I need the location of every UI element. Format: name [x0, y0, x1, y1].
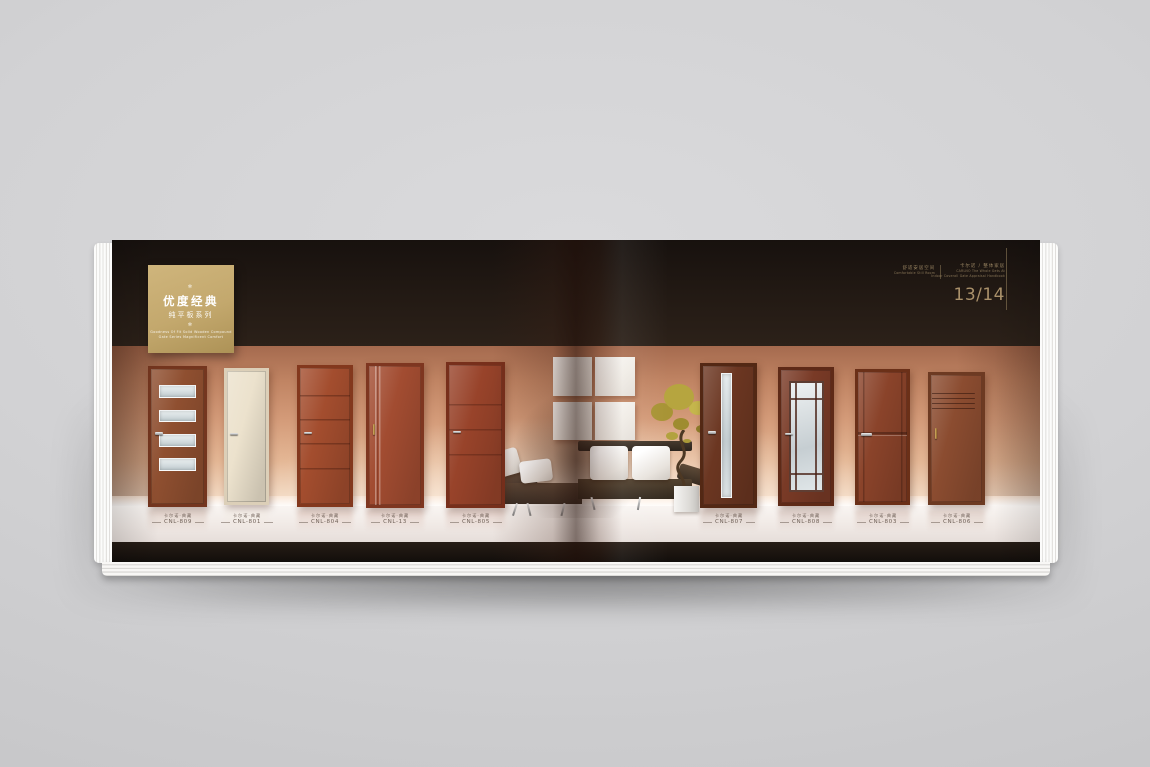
series-caption: Goodness Of Fit Solid Wooden Compound Ga…	[150, 330, 231, 339]
ornament-icon: ✻	[188, 284, 194, 290]
door-label: 卡尔诺·典藏 CNL-806	[917, 513, 997, 526]
door-code: CNL-808	[766, 519, 846, 526]
door-label: 卡尔诺·典藏 CNL-808	[766, 513, 846, 526]
door-handle	[708, 431, 716, 434]
door-cnl-801	[224, 368, 269, 505]
desk-background: ✻ 优度经典 纯平板系列 ✻ Goodness Of Fit Solid Woo…	[0, 0, 1150, 767]
frosted-glass-vertical-strip	[721, 373, 731, 498]
door-panel	[931, 375, 982, 502]
door-code: CNL-801	[207, 519, 287, 526]
header-brand-block: 卡尔诺 / 整体家居 CARLNO The Whole Gets At Indo…	[855, 264, 1005, 278]
door-handle	[861, 433, 872, 436]
door-code: CNL-13	[355, 519, 435, 526]
frosted-glass-strip	[159, 434, 196, 447]
frosted-glass-strip	[159, 385, 196, 398]
door-code: CNL-804	[285, 519, 365, 526]
series-caption-line2: Gate Series Magnificent Comfort	[150, 335, 231, 340]
lattice-glass-panel	[789, 381, 824, 493]
door-cnl-13	[366, 363, 424, 508]
door-panel	[151, 369, 204, 504]
page-edge-stack-bottom	[102, 562, 1050, 576]
frosted-glass-strip	[159, 410, 196, 423]
plant-foliage	[664, 384, 694, 410]
door-label: 卡尔诺·典藏 CNL-801	[207, 513, 287, 526]
door-panel	[781, 370, 831, 503]
door-panel	[858, 372, 907, 502]
door-panel	[300, 368, 350, 504]
door-panel	[449, 365, 502, 505]
door-cnl-804	[297, 365, 353, 507]
plant-pot	[674, 486, 699, 512]
door-handle	[304, 432, 312, 435]
catalog-book: ✻ 优度经典 纯平板系列 ✻ Goodness Of Fit Solid Woo…	[94, 236, 1058, 576]
chrome-leg	[560, 503, 565, 516]
door-handle	[155, 432, 163, 435]
door-panel	[703, 366, 754, 505]
frosted-glass-strip	[159, 458, 196, 471]
bottom-black-band	[112, 542, 1040, 562]
door-code: CNL-805	[436, 519, 516, 526]
door-panel	[369, 366, 421, 505]
door-code: CNL-809	[138, 519, 218, 526]
door-label: 卡尔诺·典藏 CNL-804	[285, 513, 365, 526]
white-pillow	[590, 446, 628, 480]
plant-trunk	[672, 430, 694, 492]
door-handle	[373, 424, 376, 435]
door-cnl-807	[700, 363, 757, 508]
page-edge-stack-right	[1040, 243, 1058, 563]
wall-art-square	[553, 357, 592, 396]
door-cnl-803	[855, 369, 910, 505]
page-number: 13/14	[954, 285, 1006, 305]
door-code: CNL-803	[843, 519, 923, 526]
door-handle	[935, 428, 938, 439]
door-cnl-806	[928, 372, 985, 505]
series-title-box: ✻ 优度经典 纯平板系列 ✻ Goodness Of Fit Solid Woo…	[148, 265, 234, 353]
top-black-band	[112, 240, 1040, 346]
door-code: CNL-806	[917, 519, 997, 526]
chrome-leg	[512, 503, 518, 516]
door-cnl-808	[778, 367, 834, 506]
white-pillow	[519, 458, 553, 484]
wall-art-square	[595, 357, 635, 396]
door-label: 卡尔诺·典藏 CNL-13	[355, 513, 435, 526]
chrome-leg	[526, 503, 531, 516]
door-code: CNL-807	[689, 519, 769, 526]
door-cnl-805	[446, 362, 505, 508]
series-subtitle: 纯平板系列	[169, 310, 214, 320]
series-title: 优度经典	[163, 293, 219, 309]
door-panel	[227, 371, 266, 502]
door-label: 卡尔诺·典藏 CNL-809	[138, 513, 218, 526]
page-edge-stack-left	[94, 243, 112, 563]
door-cnl-809	[148, 366, 207, 507]
door-handle	[230, 433, 238, 436]
header-brand-en2: Indoor Coverall Gate Appraisal Handbook	[855, 274, 1005, 278]
door-handle	[453, 431, 461, 434]
catalog-spread: ✻ 优度经典 纯平板系列 ✻ Goodness Of Fit Solid Woo…	[112, 240, 1040, 562]
header-vertical-rule	[1006, 248, 1007, 310]
door-label: 卡尔诺·典藏 CNL-803	[843, 513, 923, 526]
door-handle	[785, 433, 793, 436]
ornament-icon: ✻	[188, 322, 194, 328]
